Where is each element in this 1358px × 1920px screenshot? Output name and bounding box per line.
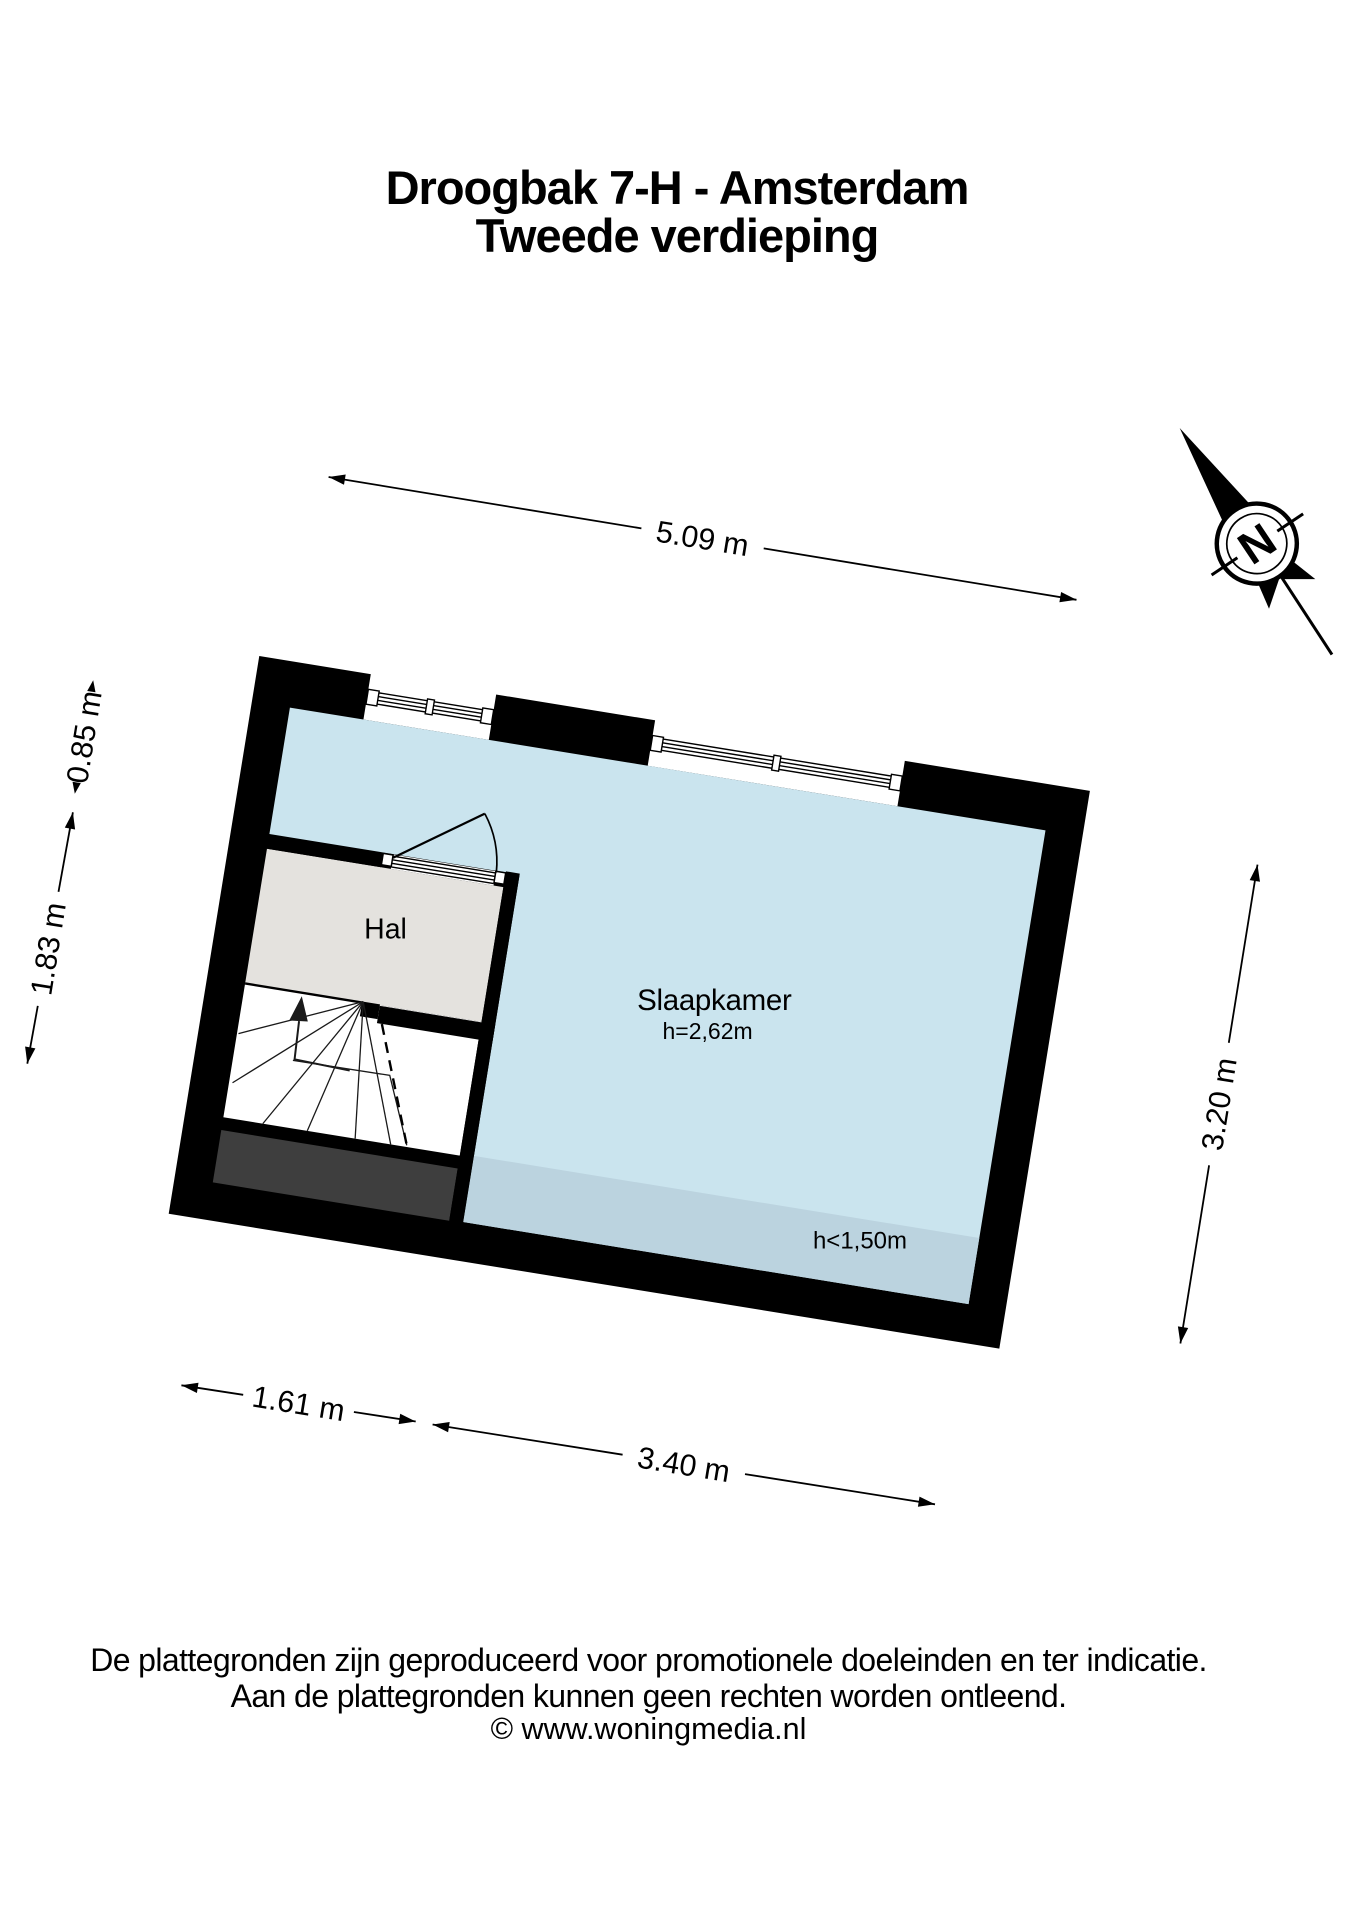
- svg-text:Slaapkamer: Slaapkamer: [637, 984, 792, 1017]
- svg-text:Aan de plattegronden kunnen ge: Aan de plattegronden kunnen geen rechten…: [231, 1678, 1067, 1714]
- svg-text:© www.woningmedia.nl: © www.woningmedia.nl: [491, 1712, 807, 1746]
- svg-text:De plattegronden zijn geproduc: De plattegronden zijn geproduceerd voor …: [90, 1642, 1207, 1678]
- svg-text:3.20 m: 3.20 m: [1195, 1055, 1244, 1152]
- svg-text:0.85 m: 0.85 m: [60, 688, 109, 785]
- svg-text:Droogbak 7-H - Amsterdam: Droogbak 7-H - Amsterdam: [386, 161, 969, 214]
- svg-text:Hal: Hal: [364, 914, 407, 946]
- svg-text:Tweede verdieping: Tweede verdieping: [476, 209, 879, 262]
- svg-text:1.61 m: 1.61 m: [250, 1380, 347, 1429]
- svg-text:h<1,50m: h<1,50m: [813, 1228, 907, 1255]
- svg-text:5.09 m: 5.09 m: [654, 515, 751, 564]
- svg-text:3.40 m: 3.40 m: [635, 1441, 732, 1490]
- svg-text:h=2,62m: h=2,62m: [663, 1018, 753, 1044]
- svg-text:1.83 m: 1.83 m: [24, 900, 73, 997]
